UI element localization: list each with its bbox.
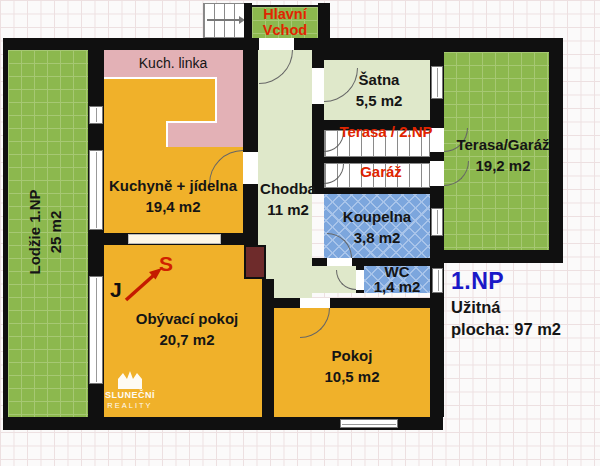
usable-area-line1: Užitná xyxy=(451,296,561,318)
label-bathroom: Koupelna 3,8 m2 xyxy=(343,206,411,248)
wall xyxy=(3,38,443,50)
wall xyxy=(262,279,274,417)
wall xyxy=(3,38,8,430)
wall xyxy=(244,3,252,38)
room-name: Šatna xyxy=(356,69,403,90)
door-wardrobe xyxy=(312,68,324,104)
label-living: Obývací pokoj 20,7 m2 xyxy=(136,308,239,350)
label-bedroom: Pokoj 10,5 m2 xyxy=(324,345,379,387)
window xyxy=(431,208,443,236)
room-name: Pokoj xyxy=(324,345,379,366)
room-name: Kuchyně + jídelna xyxy=(109,175,237,196)
room-name: Terasa/Garáž xyxy=(456,134,549,155)
label-wc: WC 1,4 m2 xyxy=(374,264,421,294)
label-wardrobe: Šatna 5,5 m2 xyxy=(356,69,403,111)
room-area: 25 m2 xyxy=(45,189,66,274)
watermark-line2: REALITY xyxy=(105,401,155,410)
stairs-direction-line xyxy=(207,19,239,21)
wall xyxy=(243,50,258,245)
entrance-line1: Hlavní xyxy=(263,6,307,22)
entrance-line2: Vchod xyxy=(263,22,307,38)
wide-opening-kitchen-living xyxy=(128,234,221,244)
wall xyxy=(262,298,443,308)
watermark-line1: SLUNEČNÍ xyxy=(105,390,155,401)
door-bedroom xyxy=(300,298,330,308)
door-wc xyxy=(356,270,364,290)
door-main-entrance xyxy=(259,38,294,50)
window xyxy=(89,106,103,124)
label-terrace-garage: Terasa/Garáž 19,2 m2 xyxy=(456,134,549,176)
crown-icon xyxy=(115,370,145,390)
watermark-logo: SLUNEČNÍ REALITY xyxy=(105,370,155,410)
wall xyxy=(312,188,443,194)
label-stairs-terrace: Terasa / 2.NP xyxy=(339,121,432,142)
door-bathroom xyxy=(327,258,352,266)
wall xyxy=(312,50,443,60)
wall xyxy=(318,3,330,38)
room-area: 11 m2 xyxy=(260,199,316,220)
window xyxy=(432,268,443,293)
room-name: Lodžie 1.NP xyxy=(24,189,45,274)
floor-label: 1.NP xyxy=(451,268,504,295)
door-kitchen xyxy=(243,152,258,184)
room-area: 20,7 m2 xyxy=(136,329,239,350)
window xyxy=(89,276,103,384)
label-lodzie: Lodžie 1.NP 25 m2 xyxy=(24,189,66,274)
label-hallway: Chodba 11 m2 xyxy=(260,178,316,220)
stairs-terrace-text: Terasa / 2.NP xyxy=(339,121,432,142)
wall xyxy=(430,250,563,263)
room-area: 1,4 m2 xyxy=(374,279,421,294)
room-name: Chodba xyxy=(260,178,316,199)
chimney xyxy=(244,245,266,279)
label-stairs-garage: Garáž xyxy=(360,161,402,182)
window xyxy=(89,150,103,230)
door-terrace-2 xyxy=(430,161,444,186)
room-name: Kuch. linka xyxy=(139,53,207,74)
label-kitchen-counter: Kuch. linka xyxy=(139,53,207,74)
room-area: 19,2 m2 xyxy=(456,155,549,176)
window xyxy=(340,419,398,428)
usable-area-line2: plocha: 97 m2 xyxy=(451,318,561,340)
usable-area-label: Užitná plocha: 97 m2 xyxy=(451,296,561,340)
floor-plan: Lodžie 1.NP 25 m2 Kuch. linka Kuchyně + … xyxy=(0,0,600,466)
label-kitchen: Kuchyně + jídelna 19,4 m2 xyxy=(109,175,237,217)
stairs-garage-text: Garáž xyxy=(360,161,402,182)
wall xyxy=(549,38,563,262)
room-name: Obývací pokoj xyxy=(136,308,239,329)
room-area: 19,4 m2 xyxy=(109,196,237,217)
room-area: 3,8 m2 xyxy=(343,227,411,248)
window xyxy=(431,66,443,99)
room-name: Koupelna xyxy=(343,206,411,227)
wall xyxy=(430,38,563,52)
compass-arrow-icon xyxy=(120,258,166,304)
room-area: 5,5 m2 xyxy=(356,90,403,111)
room-area: 10,5 m2 xyxy=(324,366,379,387)
room-name: WC xyxy=(374,264,421,279)
label-main-entrance: Hlavní Vchod xyxy=(263,6,307,38)
